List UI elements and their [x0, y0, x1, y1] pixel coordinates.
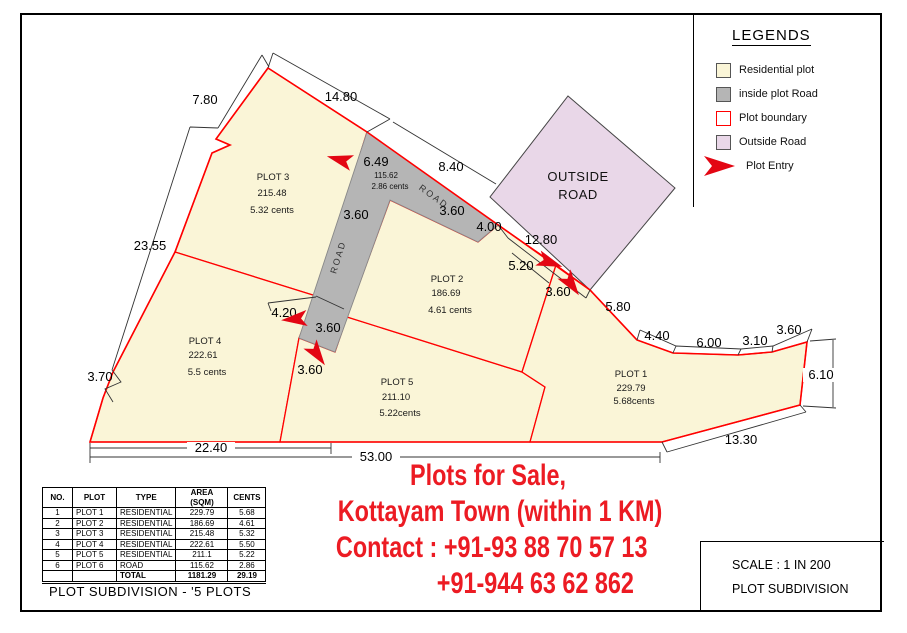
dim-label: 22.40: [195, 440, 228, 455]
ad-line-3: Contact : +91-93 88 70 57 13: [292, 530, 684, 566]
plot-5-area: 211.10: [382, 392, 410, 403]
dim-label: 4.00: [476, 219, 501, 234]
cell-no: 3: [43, 529, 73, 540]
dim-label: 23.55: [134, 238, 167, 253]
dim-label: 3.60: [315, 320, 340, 335]
ad-line-2: Kottayam Town (within 1 KM): [292, 494, 684, 530]
dim-label: 5.20: [508, 258, 533, 273]
legend-item-outside-road: Outside Road: [716, 133, 806, 151]
cell-empty: [73, 571, 117, 583]
cell-area: 222.61: [176, 539, 228, 550]
dim-label: 4.40: [644, 328, 669, 343]
outside-road-label-line1: OUTSIDE: [547, 169, 608, 184]
legends-title: LEGENDS: [732, 27, 811, 46]
plot-5-cents: 5.22cents: [379, 408, 420, 419]
cell-type: RESIDENTIAL: [117, 539, 176, 550]
plot-entry-arrow-icon: [702, 153, 738, 179]
cell-no: 6: [43, 560, 73, 571]
col-header-cents: CENTS: [228, 488, 266, 508]
plot-4-name: PLOT 4: [189, 336, 222, 347]
inside-road-swatch-icon: [716, 87, 731, 102]
col-header-type: TYPE: [117, 488, 176, 508]
cell-area: 115.62: [176, 560, 228, 571]
cell-cents: 5.32: [228, 529, 266, 540]
dim-label: 5.80: [605, 299, 630, 314]
cell-plot: PLOT 1: [73, 508, 117, 519]
cell-plot: PLOT 2: [73, 518, 117, 529]
scale-box: SCALE : 1 IN 200 PLOT SUBDIVISION: [700, 541, 884, 612]
col-header-no: NO.: [43, 488, 73, 508]
cell-cents: 2.86: [228, 560, 266, 571]
residential-swatch-icon: [716, 63, 731, 78]
cell-empty: [43, 571, 73, 583]
legend-item-residential: Residential plot: [716, 61, 814, 79]
cell-no: 1: [43, 508, 73, 519]
dim-label: 7.80: [192, 92, 217, 107]
cell-plot: PLOT 3: [73, 529, 117, 540]
road-area-label: 115.62: [374, 171, 398, 180]
cell-type: RESIDENTIAL: [117, 508, 176, 519]
outside-road-label-line2: ROAD: [558, 187, 598, 202]
cell-plot: PLOT 5: [73, 550, 117, 561]
cell-cents: 4.61: [228, 518, 266, 529]
legend-item-inside-road: inside plot Road: [716, 85, 818, 103]
cell-type: RESIDENTIAL: [117, 518, 176, 529]
legend-item-plot-entry: Plot Entry: [702, 157, 794, 175]
dim-label: 3.70: [87, 369, 112, 384]
drawing-caption: PLOT SUBDIVISION - '5 PLOTS: [49, 584, 251, 599]
cell-type: RESIDENTIAL: [117, 529, 176, 540]
legend-item-plot-boundary: Plot boundary: [716, 109, 807, 127]
plot-4-cents: 5.5 cents: [188, 367, 227, 378]
plot-1-name: PLOT 1: [615, 369, 648, 380]
cell-total-label: TOTAL: [117, 571, 176, 583]
plot-3-cents: 5.32 cents: [250, 205, 294, 216]
table-row: 2 PLOT 2 RESIDENTIAL 186.69 4.61: [43, 518, 266, 529]
col-header-plot: PLOT: [73, 488, 117, 508]
table-header-row: NO. PLOT TYPE AREA (SQM) CENTS: [43, 488, 266, 508]
dim-label: 6.49: [363, 154, 388, 169]
col-header-area: AREA (SQM): [176, 488, 228, 508]
dim-label: 14.80: [325, 89, 358, 104]
plot-2-cents: 4.61 cents: [428, 305, 472, 316]
ad-line-4: +91-944 63 62 862: [292, 566, 684, 602]
plot-boundary-swatch-icon: [716, 111, 731, 126]
dim-label: 3.60: [343, 207, 368, 222]
legend-label: inside plot Road: [739, 88, 818, 100]
plot-2-area: 186.69: [431, 288, 460, 299]
legend-label: Plot Entry: [746, 160, 794, 172]
cell-total-area: 1181.29: [176, 571, 228, 583]
plot-3-area: 215.48: [257, 188, 286, 199]
dim-label: 6.10: [808, 367, 833, 382]
cell-cents: 5.22: [228, 550, 266, 561]
dim-label: 3.60: [297, 362, 322, 377]
cell-type: RESIDENTIAL: [117, 550, 176, 561]
legend-label: Outside Road: [739, 136, 806, 148]
scale-text: SCALE : 1 IN 200: [732, 558, 831, 572]
table-row: 5 PLOT 5 RESIDENTIAL 211.1 5.22: [43, 550, 266, 561]
legend-label: Residential plot: [739, 64, 814, 76]
dim-label: 8.40: [438, 159, 463, 174]
cell-plot: PLOT 4: [73, 539, 117, 550]
dim-label: 12.80: [525, 232, 558, 247]
table-row: 3 PLOT 3 RESIDENTIAL 215.48 5.32: [43, 529, 266, 540]
cell-no: 2: [43, 518, 73, 529]
sale-advertisement: Plots for Sale, Kottayam Town (within 1 …: [292, 458, 684, 602]
plot-1-area: 229.79: [616, 383, 645, 394]
dim-label: 3.60: [545, 284, 570, 299]
outside-road-swatch-icon: [716, 135, 731, 150]
cell-cents: 5.68: [228, 508, 266, 519]
plot-3-name: PLOT 3: [257, 172, 290, 183]
legend-label: Plot boundary: [739, 112, 807, 124]
table-row: 1 PLOT 1 RESIDENTIAL 229.79 5.68: [43, 508, 266, 519]
ad-line-1: Plots for Sale,: [292, 458, 684, 494]
dim-label: 6.00: [696, 335, 721, 350]
legends-panel: LEGENDS Residential plot inside plot Roa…: [693, 15, 883, 207]
dim-label: 3.10: [742, 333, 767, 348]
cell-area: 211.1: [176, 550, 228, 561]
cell-area: 186.69: [176, 518, 228, 529]
cell-no: 5: [43, 550, 73, 561]
table-row: 4 PLOT 4 RESIDENTIAL 222.61 5.50: [43, 539, 266, 550]
road-cents-label: 2.86 cents: [372, 182, 409, 191]
scale-subtitle: PLOT SUBDIVISION: [732, 582, 848, 596]
cell-type: ROAD: [117, 560, 176, 571]
table-total-row: TOTAL 1181.29 29.19: [43, 571, 266, 583]
cell-cents: 5.50: [228, 539, 266, 550]
plot-4-area: 222.61: [188, 350, 217, 361]
cell-total-cents: 29.19: [228, 571, 266, 583]
table-row: 6 PLOT 6 ROAD 115.62 2.86: [43, 560, 266, 571]
plot-2-name: PLOT 2: [431, 274, 464, 285]
cell-no: 4: [43, 539, 73, 550]
cell-area: 215.48: [176, 529, 228, 540]
plot-1-cents: 5.68cents: [613, 396, 654, 407]
dim-label: 13.30: [725, 432, 758, 447]
plot-summary-table: NO. PLOT TYPE AREA (SQM) CENTS 1 PLOT 1 …: [42, 487, 266, 584]
cell-plot: PLOT 6: [73, 560, 117, 571]
cell-area: 229.79: [176, 508, 228, 519]
plot-5-name: PLOT 5: [381, 377, 414, 388]
dim-label: 3.60: [776, 322, 801, 337]
